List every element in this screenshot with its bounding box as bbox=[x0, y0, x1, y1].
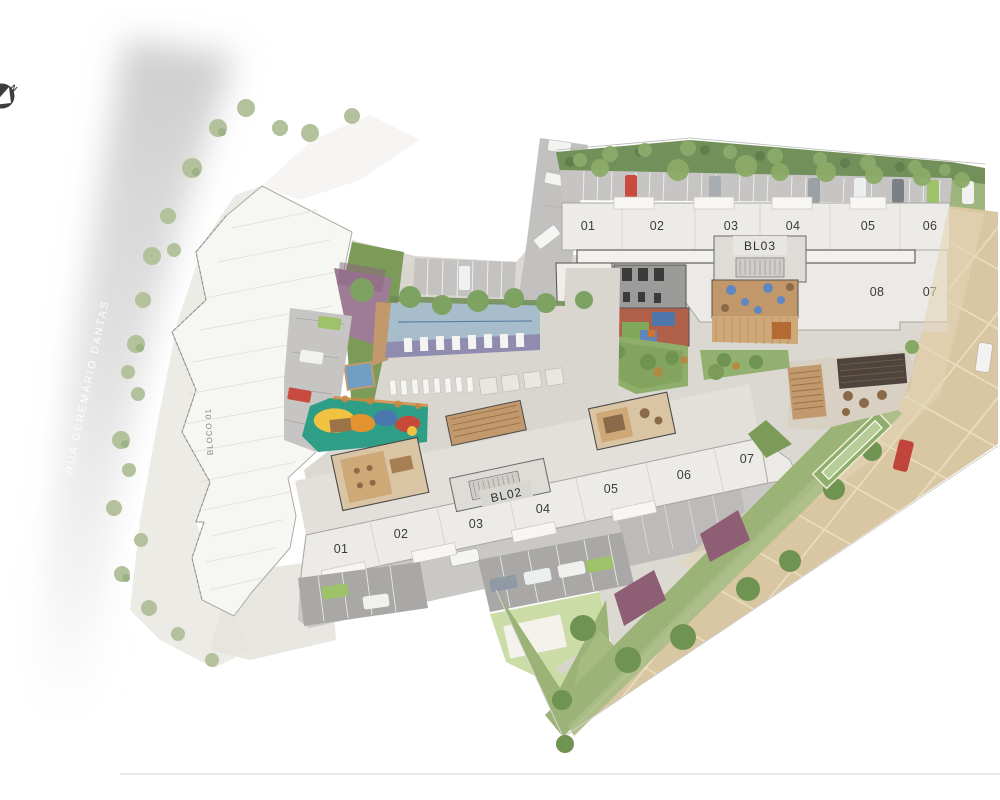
svg-text:02: 02 bbox=[394, 527, 409, 541]
svg-text:BL03: BL03 bbox=[744, 239, 776, 253]
svg-text:04: 04 bbox=[786, 219, 801, 233]
svg-text:05: 05 bbox=[861, 219, 876, 233]
svg-text:06: 06 bbox=[923, 219, 938, 233]
svg-text:05: 05 bbox=[604, 482, 619, 496]
svg-text:04: 04 bbox=[536, 502, 551, 516]
svg-text:01: 01 bbox=[334, 542, 349, 556]
svg-text:08: 08 bbox=[870, 285, 885, 299]
svg-text:03: 03 bbox=[469, 517, 484, 531]
svg-text:06: 06 bbox=[677, 468, 692, 482]
svg-text:07: 07 bbox=[740, 452, 755, 466]
svg-text:01: 01 bbox=[581, 219, 596, 233]
svg-text:02: 02 bbox=[650, 219, 665, 233]
svg-text:03: 03 bbox=[724, 219, 739, 233]
